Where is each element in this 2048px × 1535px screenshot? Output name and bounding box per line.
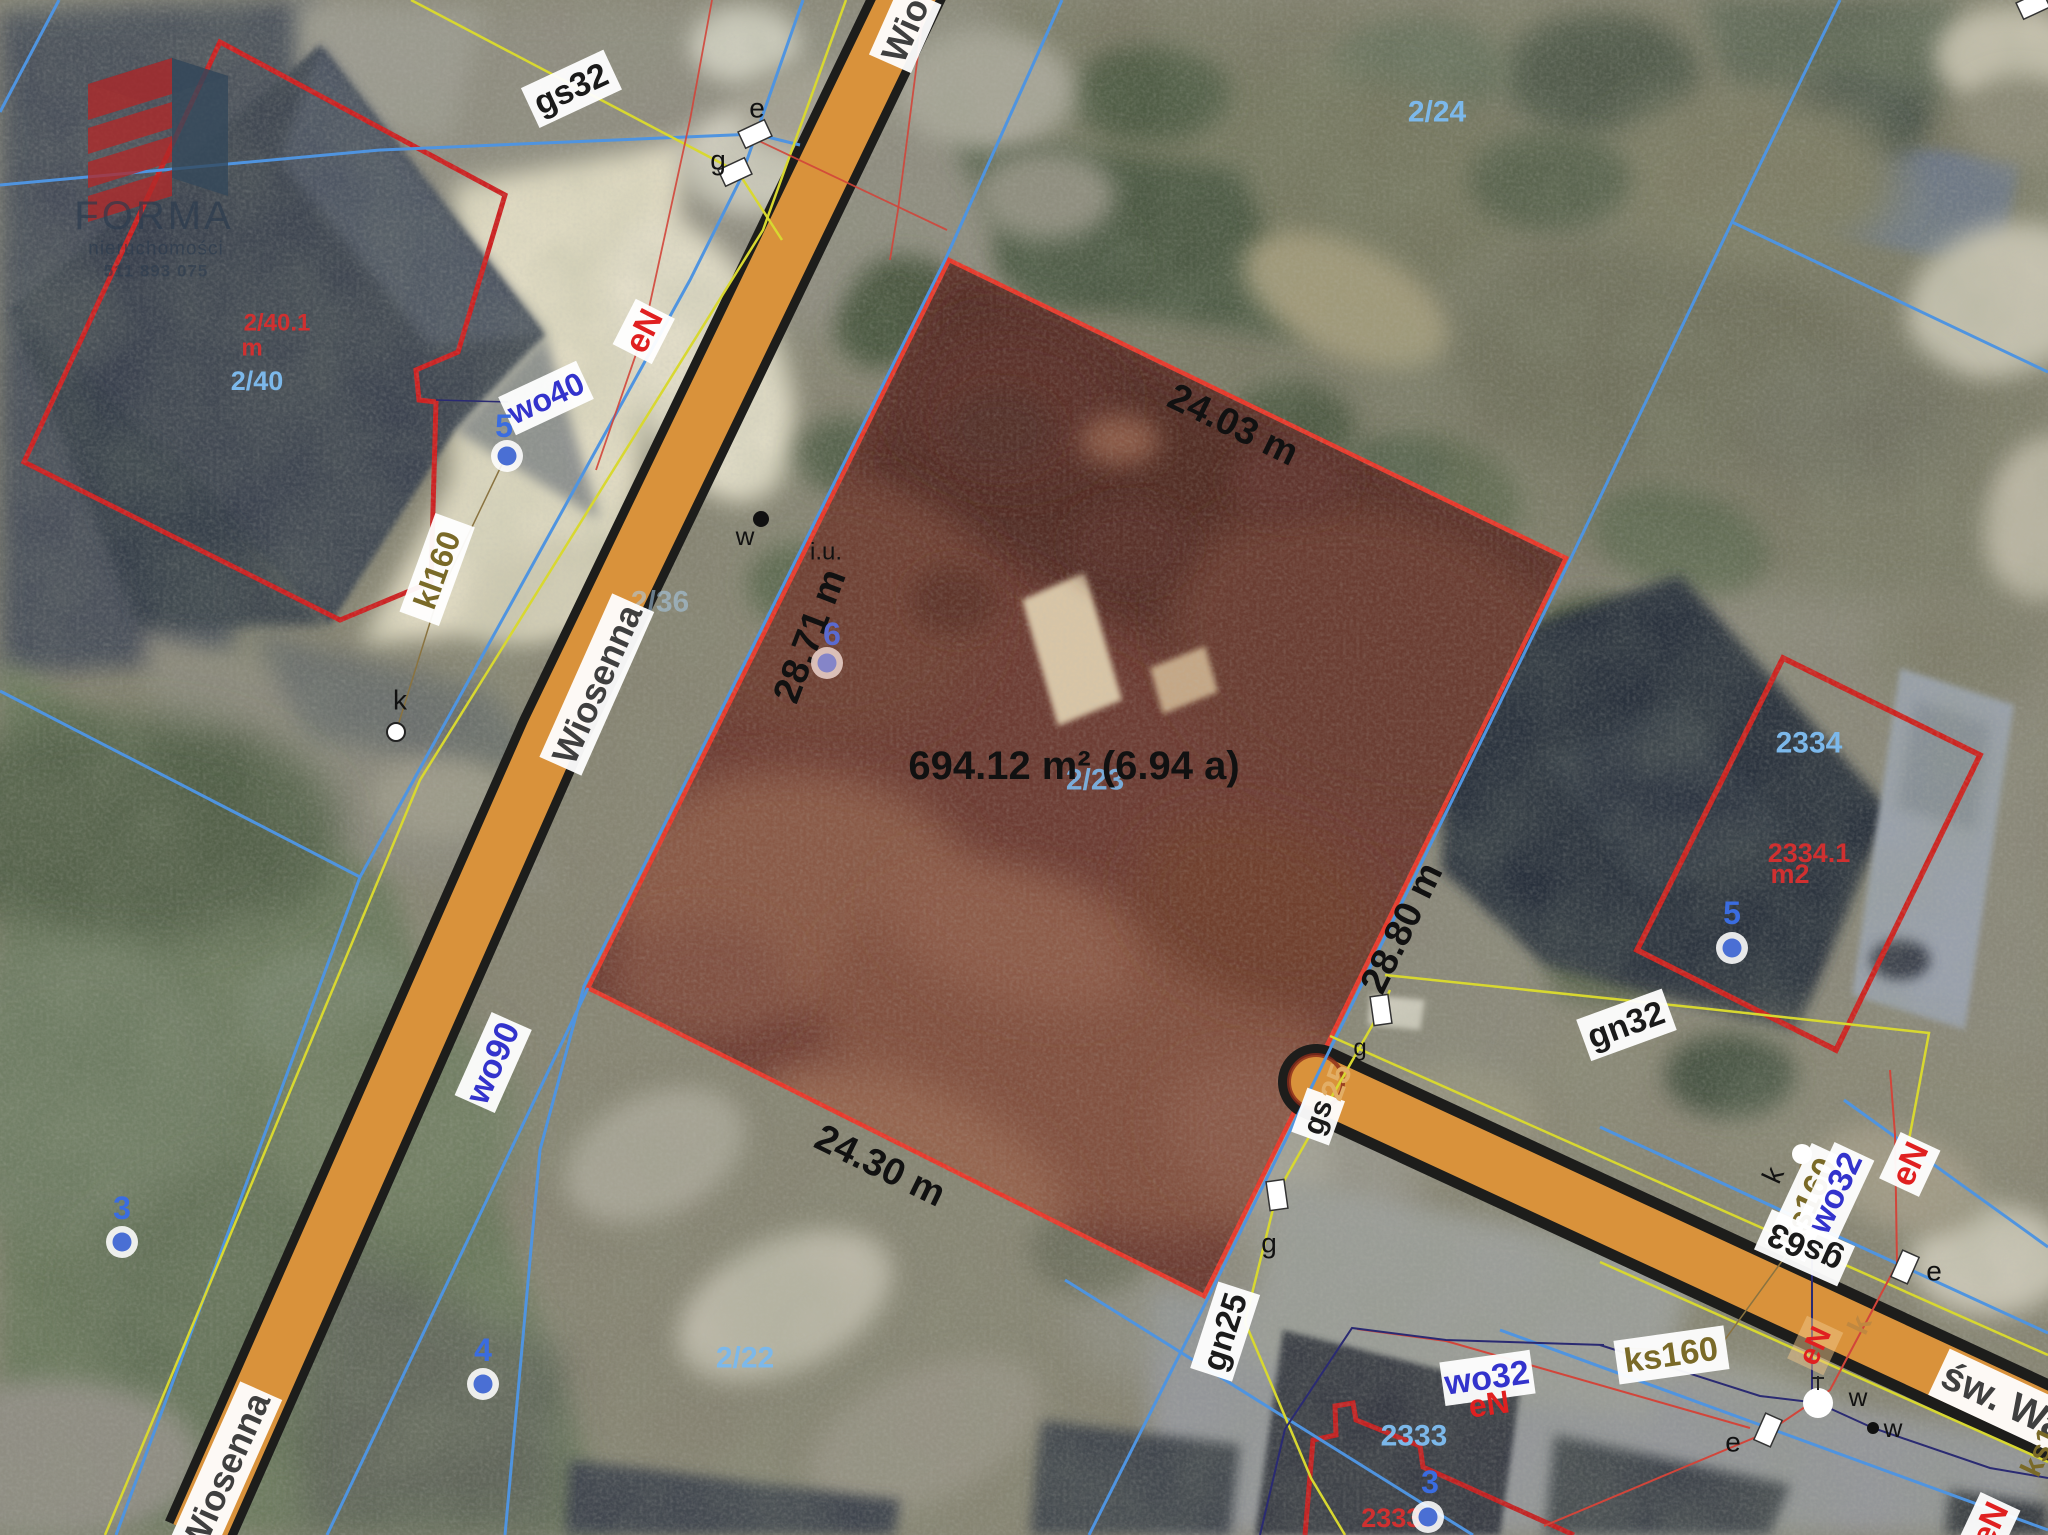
svg-text:e: e (749, 93, 765, 124)
svg-text:i.u.: i.u. (810, 539, 842, 566)
svg-text:2/40.1: 2/40.1 (244, 310, 311, 337)
svg-text:nieruchomości: nieruchomości (88, 239, 224, 260)
svg-text:5: 5 (495, 408, 513, 444)
svg-text:FORMA: FORMA (74, 194, 233, 238)
svg-text:2/22: 2/22 (716, 1342, 774, 1375)
svg-text:w: w (1848, 1382, 1868, 1412)
svg-text:3: 3 (113, 1190, 131, 1226)
svg-text:e: e (1725, 1427, 1741, 1458)
svg-text:2/24: 2/24 (1408, 96, 1467, 129)
svg-text:k: k (393, 685, 408, 716)
svg-text:g: g (1261, 1228, 1277, 1259)
svg-text:3: 3 (1421, 1464, 1439, 1500)
svg-text:2/40: 2/40 (231, 366, 284, 396)
svg-text:g: g (1353, 1035, 1366, 1062)
svg-text:e: e (1926, 1256, 1942, 1287)
svg-text:m: m (241, 335, 262, 362)
svg-text:w: w (735, 521, 755, 551)
svg-text:w: w (1883, 1413, 1903, 1443)
svg-text:m2: m2 (1770, 859, 1809, 889)
svg-text:694.12 m² (6.94 a): 694.12 m² (6.94 a) (908, 744, 1239, 788)
svg-text:2334: 2334 (1776, 727, 1843, 760)
svg-text:2333: 2333 (1381, 1420, 1448, 1453)
svg-text:eN: eN (1466, 1383, 1512, 1424)
svg-text:6: 6 (823, 616, 841, 652)
svg-text:g: g (710, 145, 726, 176)
svg-text:511 893 075: 511 893 075 (104, 262, 209, 281)
svg-text:5: 5 (1723, 895, 1741, 931)
svg-text:4: 4 (474, 1332, 492, 1368)
